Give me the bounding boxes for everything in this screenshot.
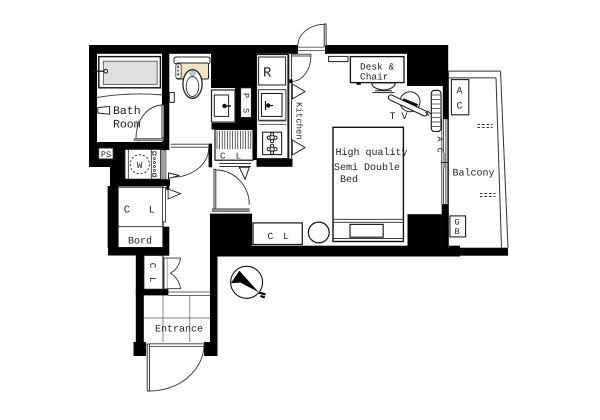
svg-text:S: S (241, 108, 251, 113)
svg-text:R: R (263, 66, 272, 82)
svg-text:Entrance: Entrance (155, 325, 203, 336)
svg-text:Bord: Bord (128, 236, 152, 248)
svg-text:Semi Double: Semi Double (334, 162, 400, 174)
svg-text:L: L (147, 277, 157, 282)
svg-text:PS: PS (101, 150, 111, 160)
svg-text:Kitchen: Kitchen (294, 102, 304, 140)
svg-text:C: C (457, 102, 463, 113)
svg-text:C L: C L (268, 231, 291, 242)
svg-text:B: B (455, 227, 460, 237)
svg-text:C: C (147, 263, 157, 269)
svg-text:C: C (124, 204, 130, 216)
svg-text:P: P (241, 93, 251, 98)
svg-text:Balcony: Balcony (453, 168, 495, 180)
svg-text:L: L (149, 204, 155, 216)
svg-text:Chair: Chair (360, 72, 389, 83)
svg-text:Bed: Bed (340, 174, 358, 186)
svg-text:T V: T V (390, 112, 408, 123)
svg-text:A: A (457, 87, 463, 98)
svg-text:C L: C L (220, 152, 243, 162)
svg-text:High quality: High quality (336, 147, 408, 159)
svg-text:G: G (455, 218, 460, 228)
svg-text:W: W (137, 160, 143, 171)
svg-text:Bath: Bath (113, 105, 141, 118)
